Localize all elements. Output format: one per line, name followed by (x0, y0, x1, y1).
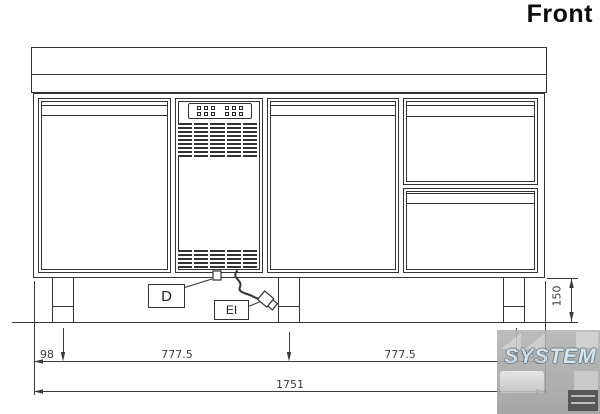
dimension-line-leg-height (571, 278, 572, 322)
power-plug-icon (258, 291, 279, 311)
dim-total-width: 1751 (276, 379, 304, 390)
button-cluster (197, 112, 215, 116)
electric-pointer-line (247, 301, 262, 307)
grille-column (178, 250, 192, 268)
dimension-line-total (34, 391, 545, 392)
dim-right-span: 777.5 (384, 349, 416, 360)
mini-logo-bar (571, 395, 595, 397)
extension-line (289, 332, 290, 357)
drawer-handle-line (407, 105, 534, 106)
button-icon (197, 106, 201, 110)
control-button-row (189, 106, 251, 110)
button-icon (232, 106, 236, 110)
grille-column (227, 123, 241, 157)
watermark-mini-logo-icon (568, 390, 598, 411)
button-icon (239, 106, 243, 110)
extension-line (547, 278, 578, 279)
button-cluster (225, 106, 243, 110)
door-handle-line (271, 115, 395, 116)
leg-foot-line (504, 306, 524, 307)
dim-left-offset: 98 (40, 349, 54, 360)
button-icon (225, 112, 229, 116)
left-door-panel (41, 101, 168, 270)
button-cluster (225, 112, 243, 116)
middle-leg (278, 277, 300, 322)
dimension-line-sections (34, 361, 545, 362)
drain-pointer-line (183, 279, 212, 288)
button-icon (204, 112, 208, 116)
button-icon (239, 112, 243, 116)
dim-leg-height: 150 (552, 286, 563, 307)
grille-column (210, 123, 224, 157)
leg-foot-line (53, 306, 73, 307)
door-handle-line (271, 105, 395, 106)
control-button-row (189, 112, 251, 116)
watermark-brand-text: SYSTEM (497, 345, 600, 369)
control-panel (188, 103, 252, 119)
door-handle-line (42, 115, 167, 116)
view-title: Front (527, 0, 593, 29)
grille-column (243, 123, 257, 157)
button-icon (232, 112, 236, 116)
button-icon (197, 112, 201, 116)
ventilation-grille-top (178, 123, 257, 157)
button-icon (211, 112, 215, 116)
button-icon (225, 106, 229, 110)
grille-column (227, 250, 241, 268)
watermark-decor-pill (500, 371, 544, 393)
ground-line (12, 322, 578, 323)
door-handle-line (42, 105, 167, 106)
leg-foot-line (279, 306, 299, 307)
electric-inlet-callout: EI (214, 300, 249, 320)
button-icon (211, 106, 215, 110)
grille-column (194, 250, 208, 268)
dim-left-span: 777.5 (161, 349, 193, 360)
drawer-handle-line (407, 193, 534, 194)
extension-line (63, 328, 64, 357)
watermark-decor-block (574, 371, 598, 390)
extension-line (34, 281, 35, 395)
drain-callout: D (148, 284, 185, 308)
top-drawer (403, 98, 538, 185)
watermark-logo: SYSTEM (497, 330, 600, 414)
left-leg (52, 277, 74, 322)
middle-door (267, 98, 399, 273)
bottom-drawer (403, 188, 538, 273)
grille-column (243, 250, 257, 268)
technical-drawing-front-view: Front (0, 0, 600, 414)
ventilation-grille-bottom (178, 250, 257, 268)
top-drawer-panel (406, 101, 535, 182)
worktop-edge-line (32, 74, 546, 75)
right-leg (503, 277, 525, 322)
grille-column (210, 250, 224, 268)
bottom-drawer-panel (406, 191, 535, 270)
worktop (31, 47, 547, 93)
mini-logo-bar (571, 402, 595, 404)
left-door (38, 98, 171, 273)
button-icon (204, 106, 208, 110)
grille-column (194, 123, 208, 157)
grille-column (178, 123, 192, 157)
drawer-handle-line (407, 203, 534, 204)
drawer-handle-line (407, 116, 534, 117)
button-cluster (197, 106, 215, 110)
middle-door-panel (270, 101, 396, 270)
